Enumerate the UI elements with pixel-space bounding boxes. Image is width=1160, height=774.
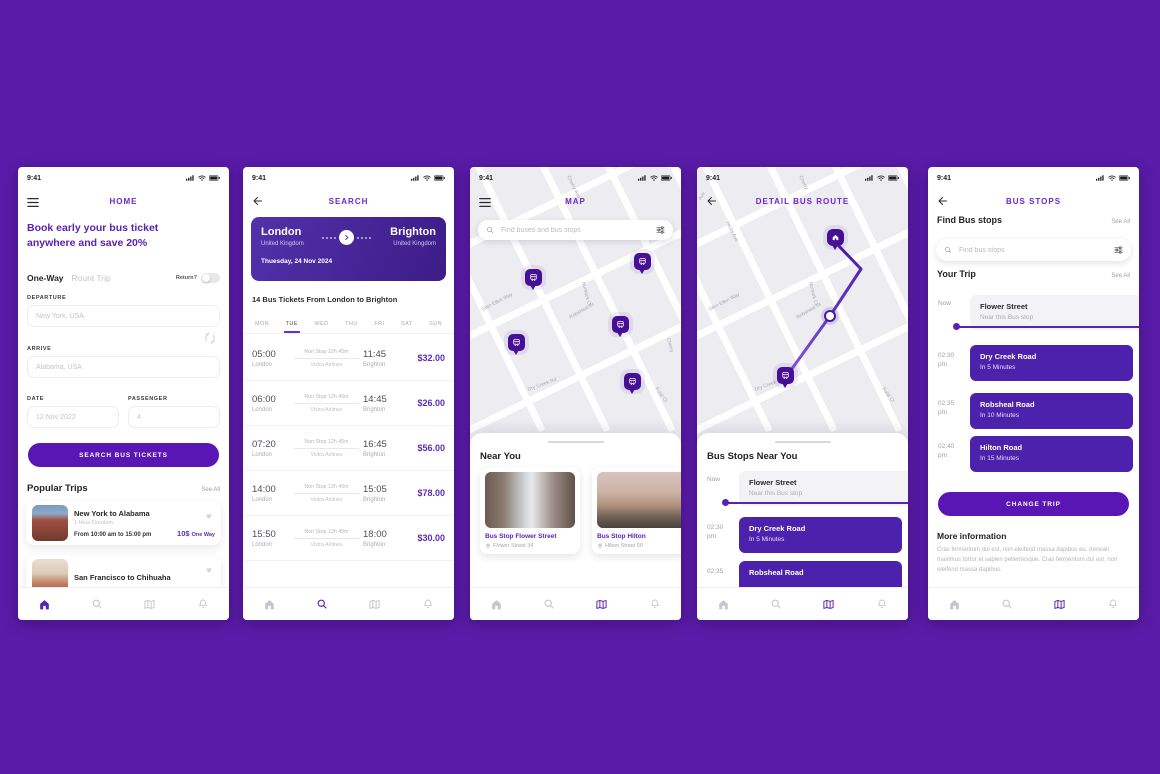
carrier-name: Vistra Airlines	[294, 449, 359, 458]
battery-icon	[1119, 175, 1130, 181]
carrier-name: Vistra Airlines	[294, 494, 359, 503]
nav-notifications[interactable]	[1103, 594, 1123, 614]
from-country: United Kingdom	[261, 241, 304, 247]
map-icon	[595, 598, 608, 611]
bus-stop-address: Flower Street 34	[493, 543, 533, 549]
ticket-price: $26.00	[401, 398, 445, 408]
bus-stop-card-flower[interactable]: Bus Stop Flower Street Flower Street 34	[480, 467, 580, 554]
bell-icon	[197, 598, 209, 610]
stop-card[interactable]: Robsheal Road In 10 Minutes	[970, 393, 1133, 429]
page-title: DETAIL BUS ROUTE	[756, 197, 849, 206]
arrival-city: Brighton	[363, 497, 401, 503]
bottom-nav	[697, 587, 908, 620]
search-icon	[486, 226, 494, 234]
ticket-row[interactable]: 06:00London Non Stop 12h 45mVistra Airli…	[243, 381, 454, 426]
nav-home[interactable]	[259, 594, 279, 614]
arrival-city: Brighton	[363, 452, 401, 458]
stop-time: Now	[938, 299, 951, 308]
your-trip-heading: Your Trip	[937, 269, 976, 279]
ticket-row[interactable]: 14:00London Non Stop 12h 45mVistra Airli…	[243, 471, 454, 516]
trip-price: 10$	[177, 529, 190, 538]
home-header: HOME	[18, 193, 229, 209]
nav-home[interactable]	[486, 594, 506, 614]
street-label: Cherry	[665, 337, 674, 353]
bus-stop-search-bar[interactable]	[936, 239, 1131, 261]
nav-notifications[interactable]	[418, 594, 438, 614]
search-icon	[944, 246, 952, 254]
bus-icon	[529, 273, 538, 282]
stop-name: Flower Street	[980, 302, 1129, 311]
stop-time: 02:35	[707, 567, 723, 576]
nav-map[interactable]	[1050, 594, 1070, 614]
map-search-bar[interactable]	[478, 220, 673, 240]
status-bar: 9:41	[928, 171, 1139, 185]
ticket-price: $78.00	[401, 488, 445, 498]
nav-home[interactable]	[34, 594, 54, 614]
sheet-drag-handle[interactable]	[775, 441, 831, 443]
signal-icon	[638, 175, 647, 181]
stops-info: Non Stop 12h 45m	[294, 484, 359, 494]
stop-name: Robsheal Road	[980, 400, 1123, 409]
trip-title: San Francisco to Chihuaha	[74, 573, 215, 582]
chevron-right-icon	[343, 234, 350, 241]
screen-detail-route: Ave Hicks Ave Cherry Nomark Ct Glen Elle…	[697, 167, 908, 620]
stops-info: Non Stop 12h 45m	[294, 349, 359, 359]
to-country: United Kingdom	[390, 241, 436, 247]
carrier-name: Vistra Airlines	[294, 539, 359, 548]
sheet-drag-handle[interactable]	[548, 441, 604, 443]
street-label: Robsheal Dr	[569, 302, 596, 321]
nav-map[interactable]	[140, 594, 160, 614]
bus-current-pin[interactable]	[777, 367, 794, 384]
more-information-heading: More information	[937, 531, 1006, 541]
departure-time: 15:50	[252, 529, 290, 540]
search-header: SEARCH	[243, 193, 454, 209]
return-toggle[interactable]	[201, 273, 220, 283]
stop-time: 02:30pm	[938, 351, 954, 369]
popular-trips-heading: Popular Trips	[27, 483, 88, 494]
stop-detail: In 5 Minutes	[749, 536, 892, 543]
stop-detail: Near this Bus stop	[749, 490, 898, 497]
trip-type-tabs: One-Way Rount Trip Return?	[27, 273, 220, 283]
battery-icon	[661, 175, 672, 181]
search-icon	[770, 598, 782, 610]
next-stop-card[interactable]: Dry Creek Road In 5 Minutes	[739, 517, 902, 553]
hamburger-icon	[27, 198, 39, 207]
nav-home[interactable]	[713, 594, 733, 614]
status-bar: 9:41	[243, 171, 454, 185]
sheet-heading: Bus Stops Near You	[707, 451, 797, 462]
back-button[interactable]	[706, 194, 718, 212]
route-direction-button[interactable]	[339, 230, 354, 245]
passenger-label: PASSENGER	[128, 396, 168, 402]
trip-card-ny-alabama[interactable]: New York to Alabama 1 Hour Duration: Fro…	[26, 501, 221, 545]
route-waypoint-dot	[824, 310, 836, 322]
page-title: BUS STOPS	[1006, 197, 1061, 206]
stop-name: Hilton Road	[980, 443, 1123, 452]
ticket-price: $32.00	[401, 353, 445, 363]
change-trip-button[interactable]: CHANGE TRIP	[938, 492, 1129, 516]
search-icon	[1001, 598, 1013, 610]
results-heading: 14 Bus Tickets From London to Brighton	[252, 295, 397, 304]
departure-input[interactable]	[27, 305, 220, 327]
date-input[interactable]	[27, 406, 119, 428]
nav-search[interactable]	[766, 594, 786, 614]
carrier-name: Vistra Airlines	[294, 359, 359, 368]
day-tab-sun[interactable]: SUN	[427, 317, 444, 333]
route-dots	[322, 237, 336, 239]
trip-duration: 1 Hour Duration:	[74, 520, 215, 526]
bus-stop-pin[interactable]	[508, 334, 525, 351]
stop-time: 02:35pm	[938, 399, 954, 417]
stop-time: 02:40pm	[938, 442, 954, 460]
stop-detail: In 15 Minutes	[980, 455, 1123, 462]
favorite-heart-icon[interactable]	[205, 561, 213, 579]
timeline-line	[958, 326, 1139, 328]
swap-locations-icon[interactable]	[203, 331, 217, 350]
menu-button[interactable]	[27, 194, 39, 212]
map-icon	[368, 598, 381, 611]
day-tabs: MON TUE WED THU FRI SAT SUN	[243, 317, 454, 334]
tab-round-trip[interactable]: Rount Trip	[72, 273, 111, 283]
status-time: 9:41	[706, 175, 720, 182]
menu-button[interactable]	[479, 194, 491, 212]
bus-stops-header: BUS STOPS	[928, 193, 1139, 209]
ticket-row[interactable]: 15:50London Non Stop 12h 45mVistra Airli…	[243, 516, 454, 561]
nav-search[interactable]	[87, 594, 107, 614]
departure-city: London	[252, 452, 290, 458]
timeline-line	[727, 502, 908, 504]
stop-name: Dry Creek Road	[749, 524, 892, 533]
status-bar: 9:41	[697, 171, 908, 185]
arrive-input[interactable]	[27, 356, 220, 378]
bell-icon	[1107, 598, 1119, 610]
status-time: 9:41	[937, 175, 951, 182]
screen-home: 9:41 HOME Book early your bus ticket any…	[18, 167, 229, 620]
bus-stop-pin[interactable]	[525, 269, 542, 286]
find-bus-stops-heading: Find Bus stops	[937, 215, 1002, 225]
search-icon	[91, 598, 103, 610]
bus-stop-photo	[485, 472, 575, 528]
bus-icon	[616, 320, 625, 329]
route-summary-card[interactable]: London United Kingdom Brighton United Ki…	[251, 217, 446, 281]
departure-city: London	[252, 542, 290, 548]
nav-notifications[interactable]	[193, 594, 213, 614]
nav-search[interactable]	[312, 594, 332, 614]
stop-name: Dry Creek Road	[980, 352, 1123, 361]
bus-icon	[628, 377, 637, 386]
street-label: Glen Ellen Way	[481, 292, 514, 313]
status-time: 9:41	[27, 175, 41, 182]
day-tab-tue[interactable]: TUE	[284, 317, 300, 333]
bottom-nav	[243, 587, 454, 620]
departure-city: London	[252, 497, 290, 503]
screen-search: 9:41 SEARCH London United Kingdom Bright…	[243, 167, 454, 620]
signal-icon	[186, 175, 195, 181]
stops-info: Non Stop 12h 45m	[294, 529, 359, 539]
arrival-time: 18:00	[363, 529, 401, 540]
arrival-time: 11:45	[363, 349, 401, 360]
current-stop-card[interactable]: Flower Street Near this Bus stop	[970, 295, 1139, 330]
back-arrow-icon	[937, 195, 949, 207]
stop-detail: In 10 Minutes	[980, 412, 1123, 419]
bus-stop-pin[interactable]	[624, 373, 641, 390]
nav-notifications[interactable]	[872, 594, 892, 614]
more-information-text: Cras fermentum dui est, non eleifend mas…	[937, 545, 1130, 575]
timeline-dot	[953, 323, 960, 330]
day-tab-thu[interactable]: THU	[343, 317, 360, 333]
ticket-price: $56.00	[401, 443, 445, 453]
map-search-input[interactable]	[499, 226, 651, 235]
map-header: MAP	[470, 193, 681, 209]
filter-icon[interactable]	[656, 226, 665, 234]
nav-map[interactable]	[365, 594, 385, 614]
trip-price-note: One Way	[192, 532, 215, 538]
from-city: London	[261, 226, 304, 238]
route-dots	[357, 237, 371, 239]
departure-label: DEPARTURE	[27, 295, 66, 301]
departure-city: London	[252, 407, 290, 413]
battery-icon	[434, 175, 445, 181]
see-all-link[interactable]: See All	[201, 487, 220, 493]
arrival-city: Brighton	[363, 542, 401, 548]
battery-icon	[209, 175, 220, 181]
status-time: 9:41	[252, 175, 266, 182]
passenger-input[interactable]	[128, 406, 220, 428]
stop-time: Now	[707, 475, 720, 484]
day-tab-mon[interactable]: MON	[253, 317, 271, 333]
battery-icon	[888, 175, 899, 181]
stop-time: 02:30pm	[707, 523, 723, 541]
bus-stop-pin[interactable]	[612, 316, 629, 333]
screen-bus-stops: 9:41 BUS STOPS Find Bus stops See All Yo…	[928, 167, 1139, 620]
bell-icon	[876, 598, 888, 610]
wifi-icon	[198, 175, 206, 181]
search-icon	[543, 598, 555, 610]
home-icon	[717, 598, 730, 611]
hamburger-icon	[479, 198, 491, 207]
day-tab-fri[interactable]: FRI	[372, 317, 386, 333]
screen-map: Cherry Ave s Ave Glen Ellen Way Nomack C…	[470, 167, 681, 620]
stop-detail: In 5 Minutes	[980, 364, 1123, 371]
signal-icon	[1096, 175, 1105, 181]
wifi-icon	[877, 175, 885, 181]
departure-time: 05:00	[252, 349, 290, 360]
house-icon	[831, 233, 840, 242]
location-icon	[485, 543, 491, 549]
date-label: DATE	[27, 396, 44, 402]
nav-search[interactable]	[539, 594, 559, 614]
filter-icon[interactable]	[1114, 246, 1123, 254]
to-city: Brighton	[390, 226, 436, 238]
search-icon	[316, 598, 328, 610]
stop-detail: Near this Bus stop	[980, 314, 1129, 321]
home-icon	[948, 598, 961, 611]
map-icon	[1053, 598, 1066, 611]
page-title: MAP	[565, 197, 586, 206]
ticket-list: 05:00London Non Stop 12h 45mVistra Airli…	[243, 336, 454, 587]
travel-date: Thuesday, 24 Nov 2024	[261, 258, 436, 265]
departure-time: 07:20	[252, 439, 290, 450]
map-icon	[822, 598, 835, 611]
page-title: SEARCH	[329, 197, 369, 206]
stops-info: Non Stop 12h 45m	[294, 394, 359, 404]
arrival-city: Brighton	[363, 407, 401, 413]
near-you-heading: Near You	[480, 451, 521, 462]
stop-card[interactable]: Hilton Road In 15 Minutes	[970, 436, 1133, 472]
home-icon	[490, 598, 503, 611]
trip-time-range: From 10:00 am to 15:00 pm	[74, 532, 151, 538]
ticket-row[interactable]: 05:00London Non Stop 12h 45mVistra Airli…	[243, 336, 454, 381]
bottom-nav	[470, 587, 681, 620]
nav-map[interactable]	[592, 594, 612, 614]
bottom-nav	[928, 587, 1139, 620]
promo-headline: Book early your bus ticket anywhere and …	[27, 221, 203, 251]
purple-backdrop: { "colors":{"background":"#5A1BA8","prim…	[0, 0, 1160, 774]
ticket-row[interactable]: 07:20London Non Stop 12h 45mVistra Airli…	[243, 426, 454, 471]
stop-card[interactable]: Dry Creek Road In 5 Minutes	[970, 345, 1133, 381]
wifi-icon	[650, 175, 658, 181]
back-button[interactable]	[937, 194, 949, 212]
search-bus-tickets-button[interactable]: SEARCH BUS TICKETS	[28, 443, 219, 467]
arrival-city: Brighton	[363, 362, 401, 368]
bottom-nav	[18, 587, 229, 620]
route-header: DETAIL BUS ROUTE	[697, 193, 908, 209]
nav-search[interactable]	[997, 594, 1017, 614]
stops-info: Non Stop 12h 45m	[294, 439, 359, 449]
bus-stop-card-hilton[interactable]: Bus Stop Hilton Hilton Street 50	[592, 467, 681, 554]
day-tab-sat[interactable]: SAT	[399, 317, 415, 333]
departure-time: 14:00	[252, 484, 290, 495]
bus-stop-address: Hilton Street 50	[605, 543, 643, 549]
departure-city: London	[252, 362, 290, 368]
trip-title: New York to Alabama	[74, 509, 215, 518]
signal-icon	[865, 175, 874, 181]
page-title: HOME	[110, 197, 138, 206]
bus-icon	[512, 338, 521, 347]
nav-map[interactable]	[819, 594, 839, 614]
return-label: Return?	[176, 275, 197, 281]
status-time: 9:41	[479, 175, 493, 182]
tab-one-way[interactable]: One-Way	[27, 273, 64, 283]
trip-photo	[32, 505, 68, 541]
bus-stop-title: Bus Stop Hilton	[597, 533, 681, 540]
nav-home[interactable]	[944, 594, 964, 614]
home-icon	[38, 598, 51, 611]
bus-stop-pin[interactable]	[634, 253, 651, 270]
back-arrow-icon	[706, 195, 718, 207]
bus-stop-search-input[interactable]	[957, 246, 1109, 255]
timeline-dot	[722, 499, 729, 506]
departure-time: 06:00	[252, 394, 290, 405]
bus-stop-photo	[597, 472, 681, 528]
bus-stop-title: Bus Stop Flower Street	[485, 533, 575, 540]
bell-icon	[422, 598, 434, 610]
see-all-link[interactable]: See All	[1111, 273, 1130, 279]
stop-name: Robsheal Road	[749, 568, 892, 577]
back-arrow-icon	[252, 195, 264, 207]
destination-pin[interactable]	[827, 229, 844, 246]
status-bar: 9:41	[18, 171, 229, 185]
day-tab-wed[interactable]: WED	[313, 317, 331, 333]
status-bar: 9:41	[470, 171, 681, 185]
arrival-time: 16:45	[363, 439, 401, 450]
home-icon	[263, 598, 276, 611]
map-icon	[143, 598, 156, 611]
nav-notifications[interactable]	[645, 594, 665, 614]
stop-name: Flower Street	[749, 478, 898, 487]
location-icon	[597, 543, 603, 549]
back-button[interactable]	[252, 194, 264, 212]
signal-icon	[411, 175, 420, 181]
bus-icon	[781, 371, 790, 380]
carrier-name: Vistra Airlines	[294, 404, 359, 413]
favorite-heart-icon[interactable]	[205, 507, 213, 525]
current-stop-card[interactable]: Flower Street Near this Bus stop	[739, 471, 908, 506]
ticket-price: $30.00	[401, 533, 445, 543]
wifi-icon	[1108, 175, 1116, 181]
arrival-time: 14:45	[363, 394, 401, 405]
arrive-label: ARRIVE	[27, 346, 51, 352]
see-all-link[interactable]: See All	[1111, 219, 1130, 225]
wifi-icon	[423, 175, 431, 181]
bus-icon	[638, 257, 647, 266]
arrival-time: 15:05	[363, 484, 401, 495]
bell-icon	[649, 598, 661, 610]
